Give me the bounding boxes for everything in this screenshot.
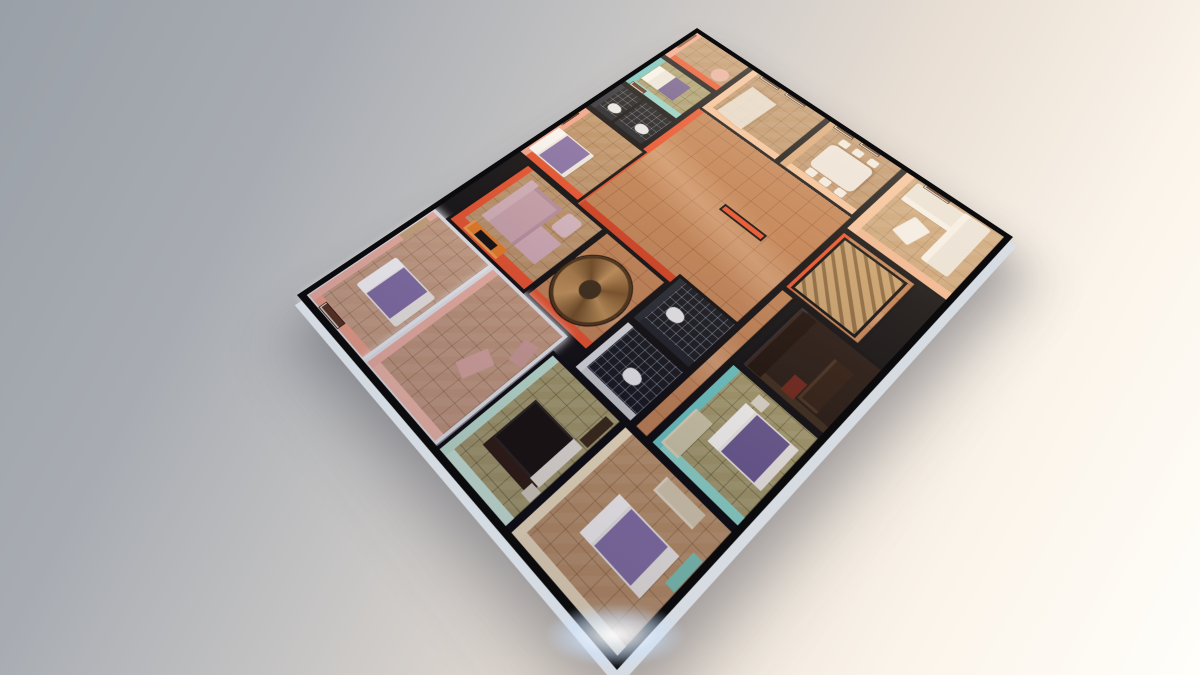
scene: [0, 0, 1200, 675]
corner-light-glow: [520, 592, 710, 675]
building-outline: [297, 28, 1013, 670]
floorplan-3d-render: [297, 28, 1013, 670]
